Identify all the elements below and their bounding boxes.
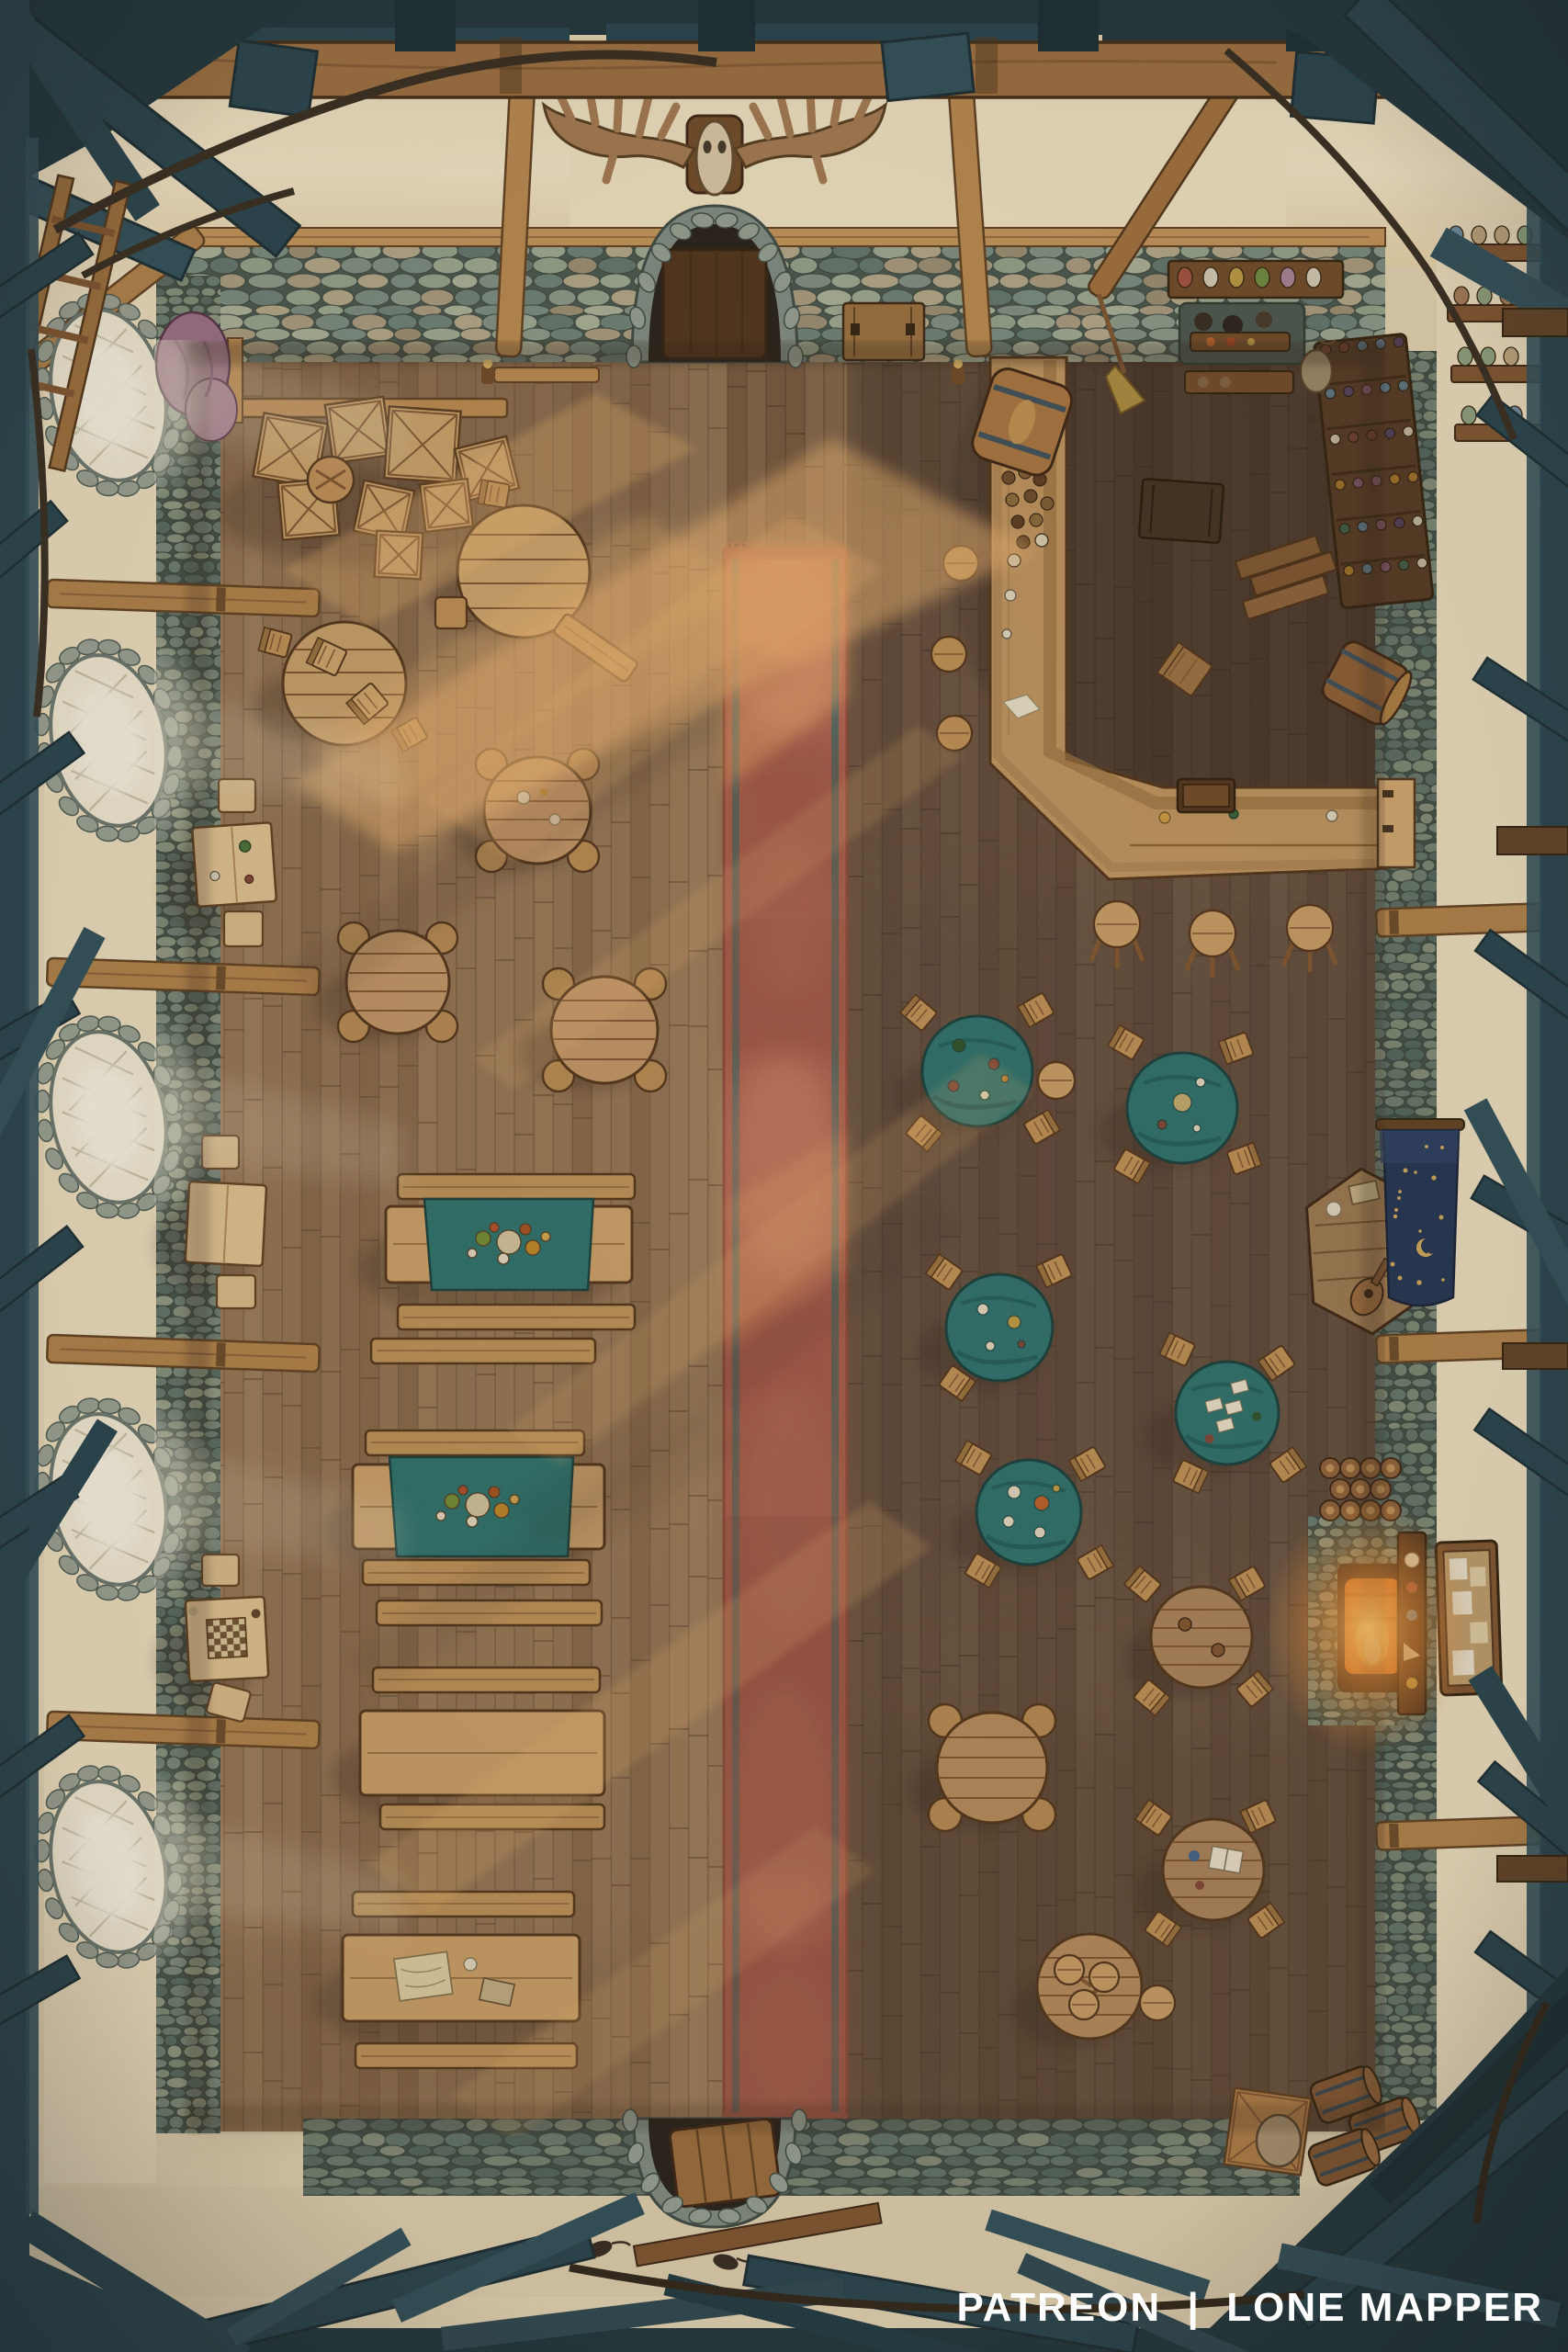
svg-text:PATREON | LONE MAPPER: PATREON | LONE MAPPER <box>957 2285 1544 2331</box>
